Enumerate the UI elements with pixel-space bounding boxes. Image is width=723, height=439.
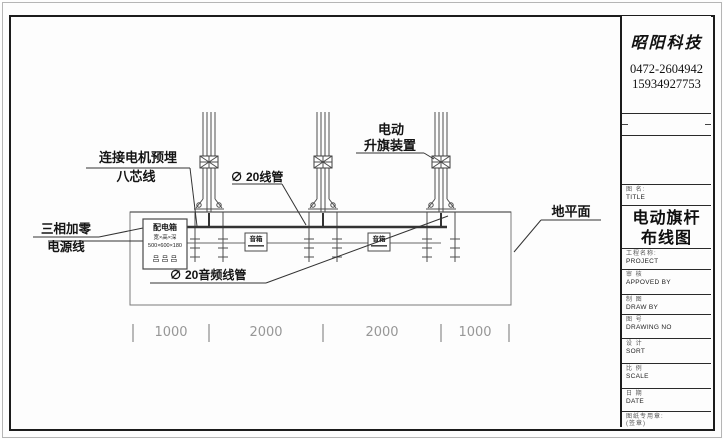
label-hoist-2: 升旗装置: [364, 138, 416, 153]
dimension-value-3: 2000: [365, 325, 398, 340]
dimension-ticks: [133, 324, 509, 342]
label-conduit: ∅ 20线管: [231, 169, 284, 184]
distribution-box-size-label: 宽×高×深: [154, 233, 177, 241]
distribution-box-title: 配电箱: [153, 222, 177, 232]
label-motor-wire-1: 连接电机预埋: [99, 150, 177, 165]
dimension-value-4: 1000: [458, 325, 491, 340]
company-phone-1: 0472-2604942: [622, 62, 711, 77]
project-field-label-cn: 工程名称:: [626, 251, 707, 258]
field-date-cn: 日 期: [626, 391, 707, 398]
title-field-label: 图 名: TITLE: [622, 184, 711, 205]
drawing-title-line1: 电动旗杆: [622, 209, 711, 229]
distribution-box: 配电箱 宽×高×深 500×600×180 吕 吕 吕: [143, 219, 187, 269]
project-field-label-en: PROJECT: [626, 258, 707, 266]
drawing-sheet: 三相加零 电源线 配电箱 宽×高×深 500×600×180 吕 吕 吕 音箱 …: [0, 0, 723, 439]
dimension-value-1: 1000: [154, 325, 187, 340]
speaker-box-1-label: 音箱: [250, 234, 264, 243]
flagpole-2: [304, 112, 342, 262]
title-block: 昭阳科技 0472-2604942 15934927753 图 名: TITLE…: [620, 16, 711, 427]
title-field-label-cn: 图 名:: [626, 187, 707, 194]
center-mark-right: [705, 124, 711, 125]
field-date: 日 期 DATE: [622, 388, 711, 411]
drawing-title: 电动旗杆 布线图: [622, 205, 711, 248]
title-block-empty-section: [622, 135, 711, 184]
dimension-value-2: 2000: [249, 325, 282, 340]
project-field: 工程名称: PROJECT: [622, 248, 711, 269]
wiring-diagram-canvas: 三相加零 电源线 配电箱 宽×高×深 500×600×180 吕 吕 吕 音箱 …: [0, 0, 723, 439]
flagpole-3: [422, 112, 460, 262]
field-sort-en: SORT: [626, 348, 707, 356]
field-draw-en: DRAW BY: [626, 304, 707, 312]
field-sort-cn: 设 计: [626, 341, 707, 348]
field-scale-cn: 比 例: [626, 366, 707, 373]
field-scale: 比 例 SCALE: [622, 363, 711, 388]
field-draw-by: 制 图 DRAW BY: [622, 294, 711, 314]
breaker-symbols-icon: 吕 吕 吕: [153, 255, 178, 263]
flagpole-1: [190, 112, 228, 262]
title-field-label-en: TITLE: [626, 194, 707, 202]
field-stamp-label: 图纸专用章:: [626, 414, 707, 421]
field-scale-en: SCALE: [626, 373, 707, 381]
field-date-en: DATE: [626, 398, 707, 406]
field-stamp: 图纸专用章: (签章): [622, 411, 711, 427]
drawing-title-line2: 布线图: [622, 229, 711, 248]
field-stamp-note: (签章): [626, 421, 707, 427]
field-sort: 设 计 SORT: [622, 338, 711, 363]
label-motor-wire-2: 八芯线: [115, 169, 155, 184]
title-block-spacer: [622, 113, 711, 135]
company-name: 昭阳科技: [622, 29, 711, 53]
field-approved-en: APPOVED BY: [626, 279, 707, 287]
field-approved-by: 审 核 APPOVED BY: [622, 269, 711, 294]
label-power-line-1: 三相加零: [41, 221, 92, 236]
label-ground-plane: 地平面: [551, 204, 590, 219]
label-hoist-1: 电动: [378, 122, 404, 137]
distribution-box-size-value: 500×600×180: [148, 243, 182, 249]
center-mark-left: [622, 124, 628, 125]
field-approved-cn: 审 核: [626, 272, 707, 279]
field-drawing-no-en: DRAWING NO: [626, 324, 707, 332]
company-phone-2: 15934927753: [622, 77, 711, 92]
title-block-company-section: 昭阳科技 0472-2604942 15934927753: [622, 16, 711, 113]
field-draw-cn: 制 图: [626, 297, 707, 304]
field-drawing-no: 图 号 DRAWING NO: [622, 314, 711, 338]
label-power-line-2: 电源线: [47, 239, 85, 254]
label-audio-conduit: ∅ 20音频线管: [170, 267, 247, 282]
speaker-box-1: 音箱: [245, 233, 267, 251]
speaker-box-2: 音箱: [368, 233, 390, 251]
field-drawing-no-cn: 图 号: [626, 317, 707, 324]
